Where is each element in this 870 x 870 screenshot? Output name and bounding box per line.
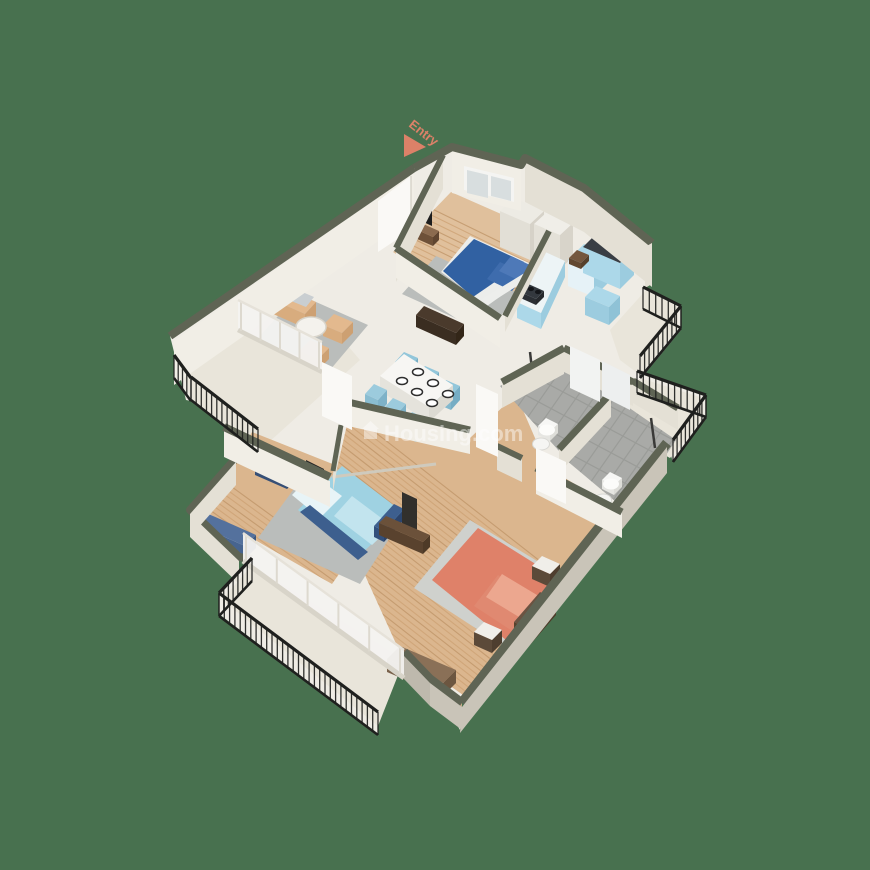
svg-text:Housing.com: Housing.com [384,421,523,446]
